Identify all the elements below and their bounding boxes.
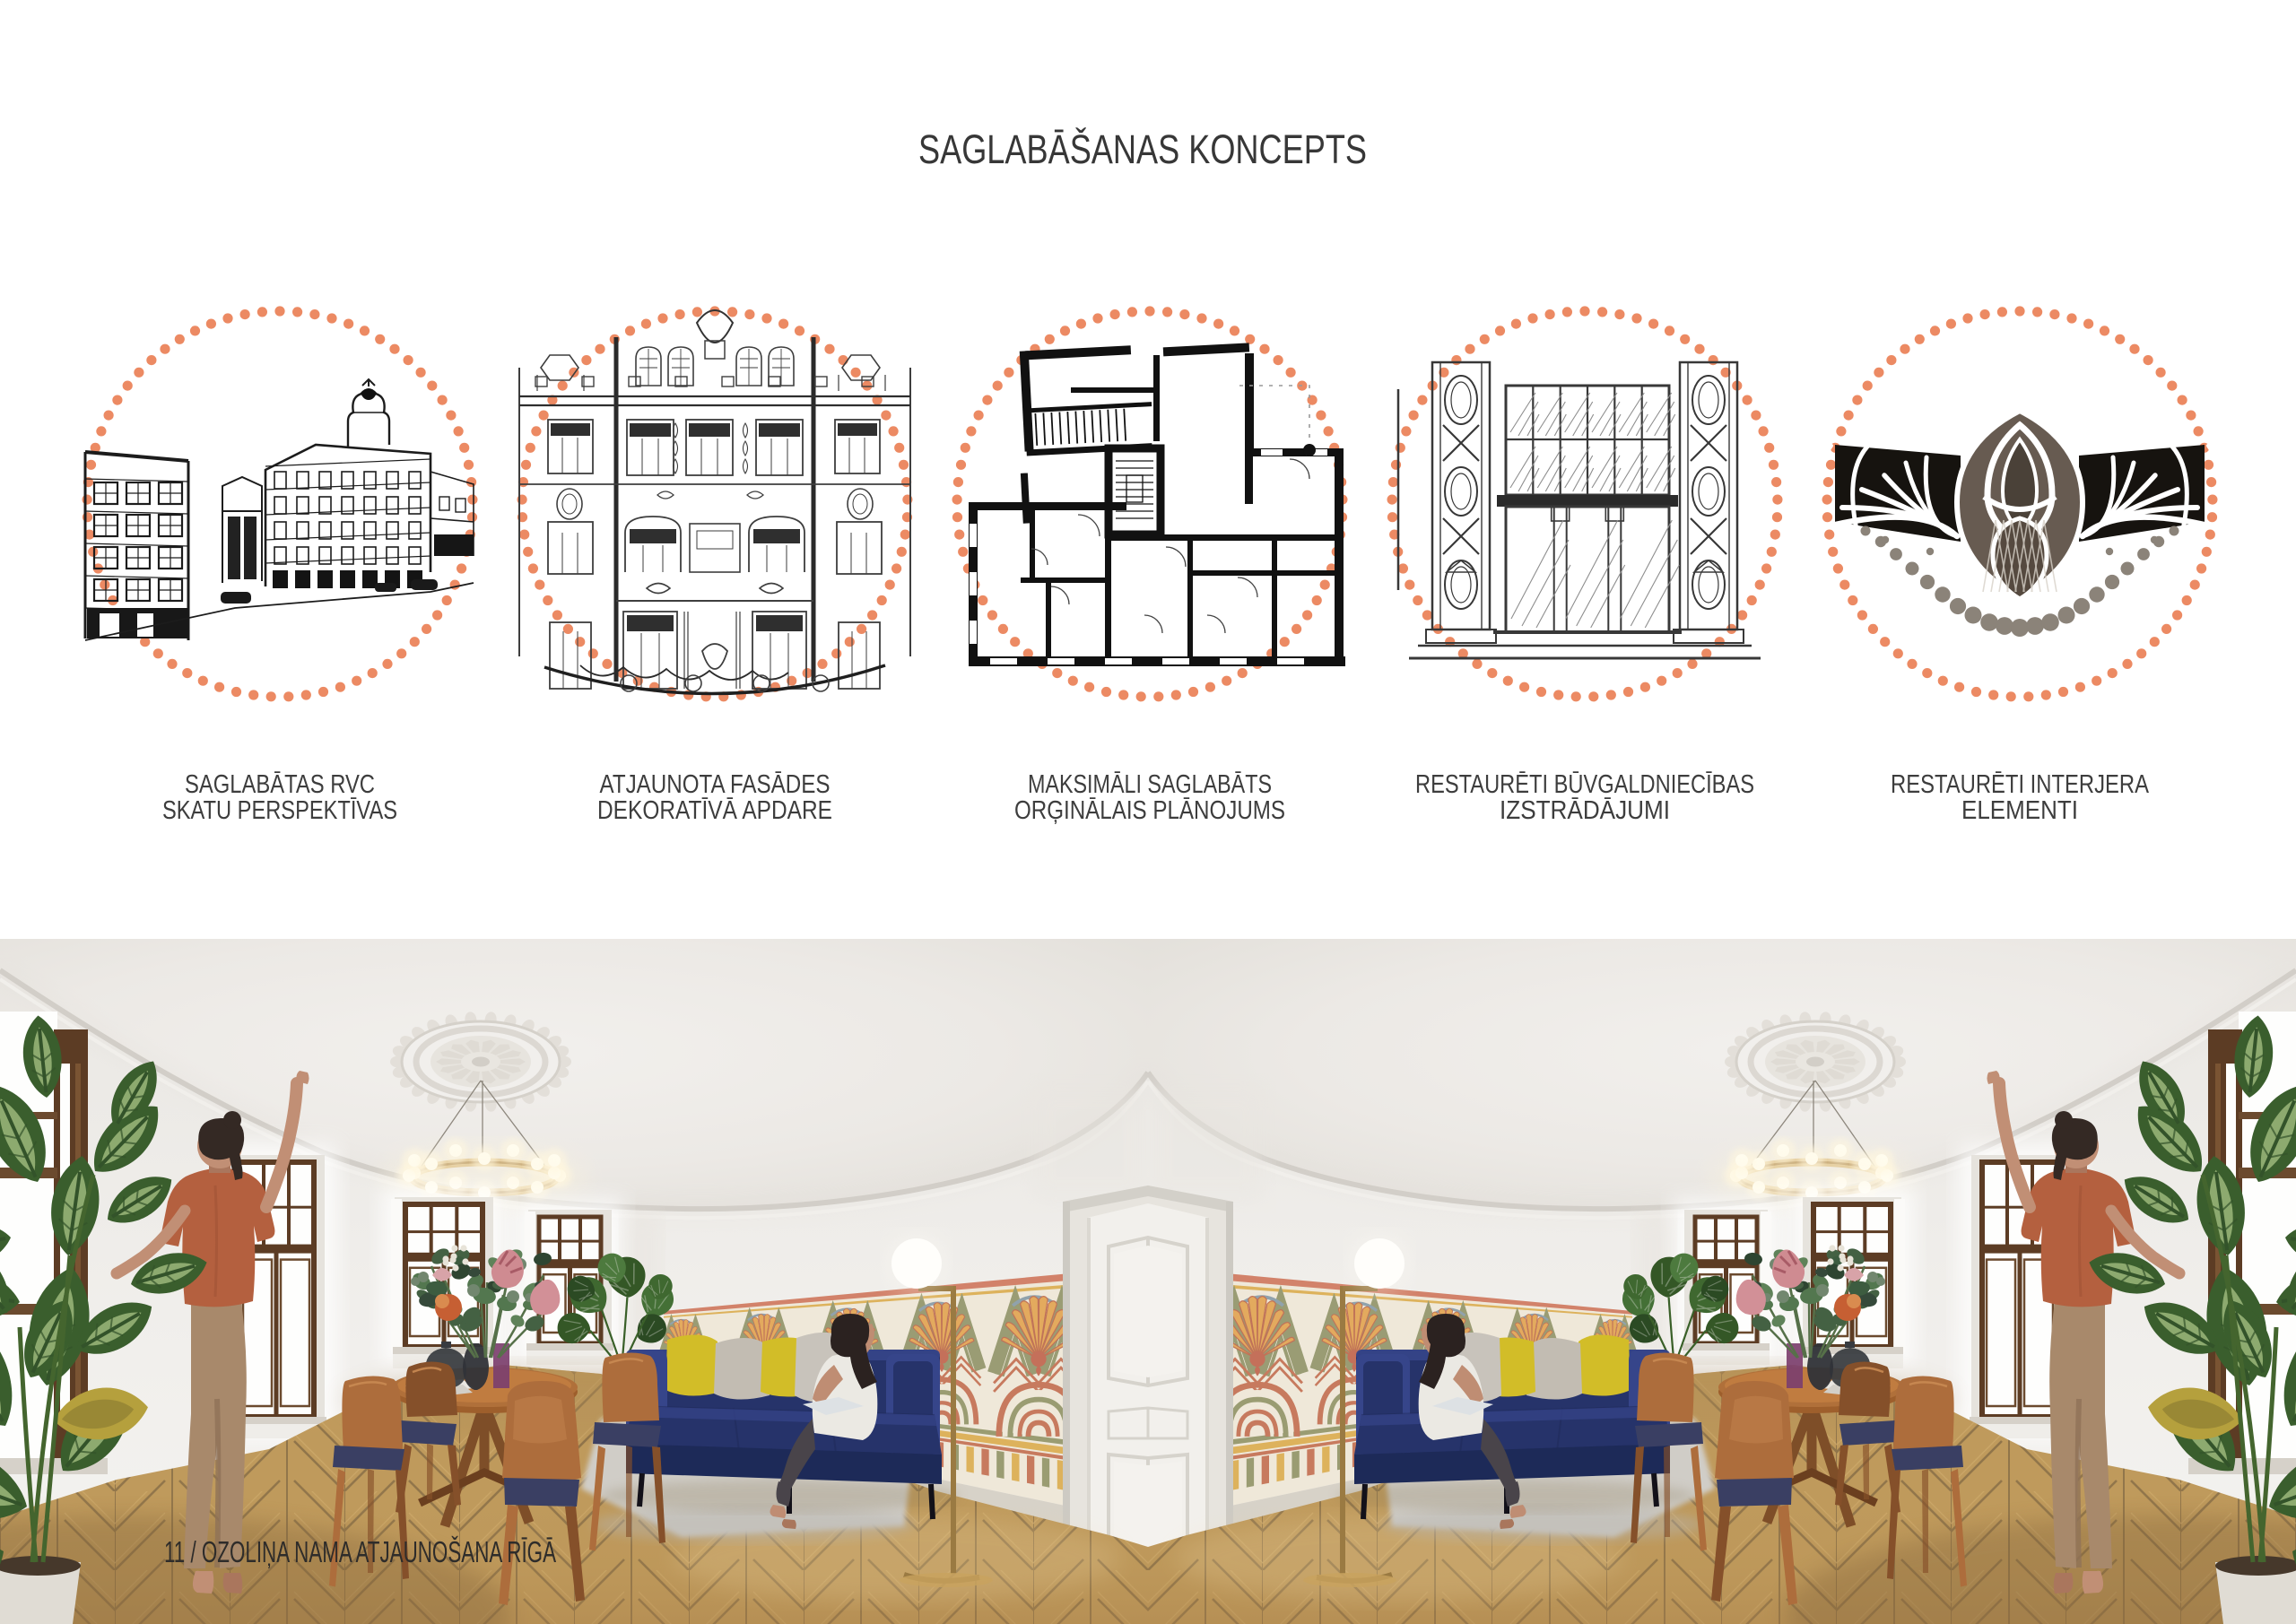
svg-text:ORĢINĀLAIS PLĀNOJUMS: ORĢINĀLAIS PLĀNOJUMS [1014, 796, 1285, 825]
svg-text:SAGLABĀŠANAS KONCEPTS: SAGLABĀŠANAS KONCEPTS [918, 126, 1367, 172]
svg-text:ELEMENTI: ELEMENTI [1961, 796, 2078, 825]
svg-text:ATJAUNOTA FASĀDES: ATJAUNOTA FASĀDES [600, 770, 831, 799]
svg-text:RESTAURĒTI BŪVGALDNIECĪBAS: RESTAURĒTI BŪVGALDNIECĪBAS [1415, 770, 1754, 799]
svg-text:MAKSIMĀLI SAGLABĀTS: MAKSIMĀLI SAGLABĀTS [1028, 770, 1272, 799]
svg-text:11 / OZOLIŅA NAMA ATJAUNOŠAN: 11 / OZOLIŅA NAMA ATJAUNOŠANA RĪGĀ [164, 1535, 556, 1568]
svg-text:DEKORATĪVĀ APDARE: DEKORATĪVĀ APDARE [597, 796, 832, 825]
svg-text:RESTAURĒTI INTERJERA: RESTAURĒTI INTERJERA [1891, 770, 2150, 799]
svg-text:SAGLABĀTAS RVC: SAGLABĀTAS RVC [185, 770, 375, 799]
svg-text:SKATU PERSPEKTĪVAS: SKATU PERSPEKTĪVAS [162, 796, 397, 825]
svg-text:IZSTRĀDĀJUMI: IZSTRĀDĀJUMI [1500, 796, 1670, 825]
